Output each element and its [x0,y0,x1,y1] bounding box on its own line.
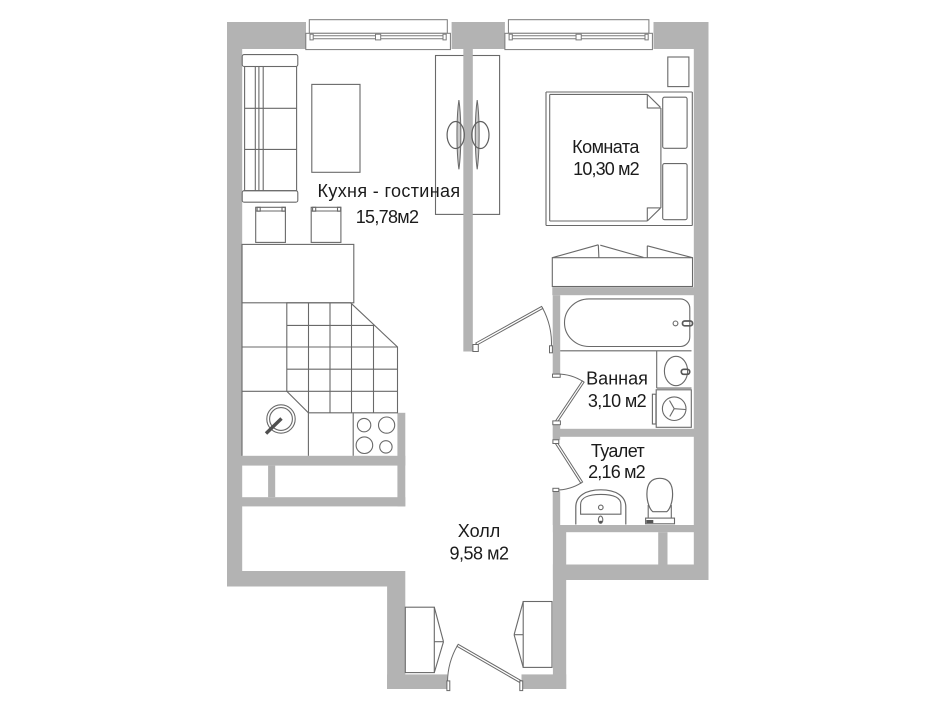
svg-text:2,16 м2: 2,16 м2 [588,462,646,482]
svg-text:9,58 м2: 9,58 м2 [450,544,509,564]
svg-text:Ванная: Ванная [586,369,648,389]
svg-text:15,78м2: 15,78м2 [356,207,419,227]
svg-text:Холл: Холл [458,521,500,541]
svg-text:Кухня - гостиная: Кухня - гостиная [318,181,461,201]
svg-text:Туалет: Туалет [591,441,645,461]
svg-text:10,30 м2: 10,30 м2 [573,159,639,179]
svg-text:Комната: Комната [572,137,640,157]
svg-text:3,10 м2: 3,10 м2 [588,391,647,411]
